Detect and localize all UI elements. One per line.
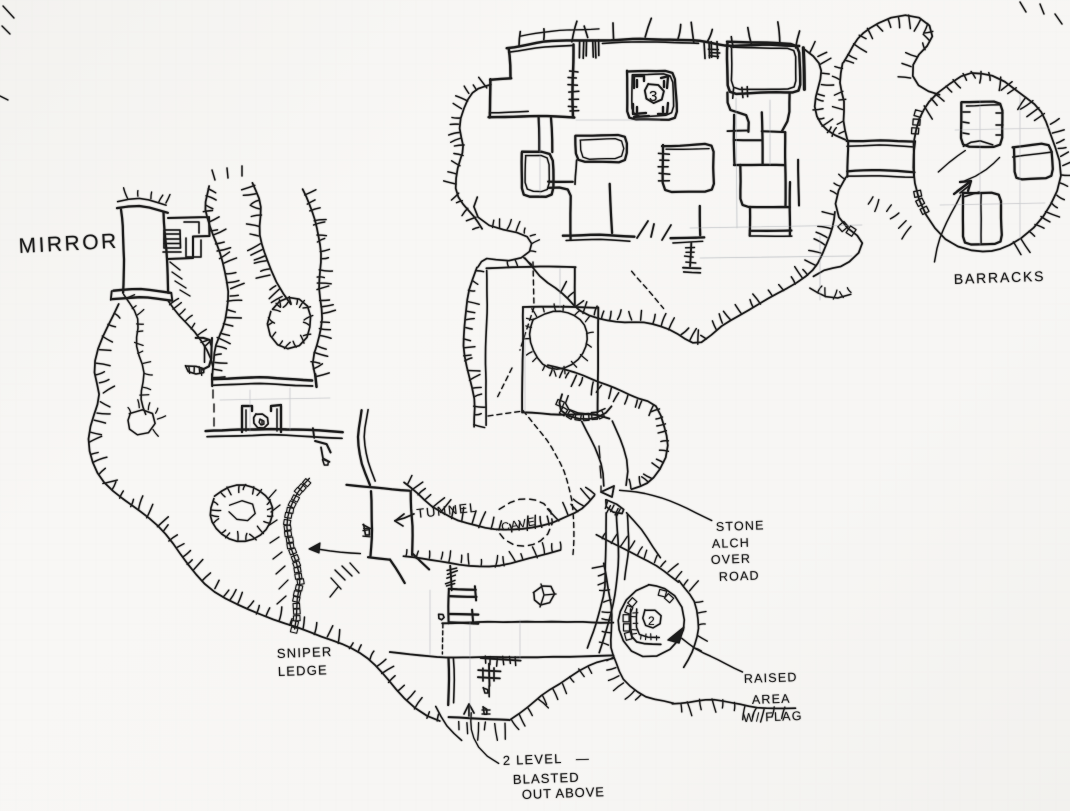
svg-text:BARRACKS: BARRACKS bbox=[954, 268, 1046, 287]
svg-text:AREA: AREA bbox=[752, 692, 791, 707]
svg-text:TUNNEL: TUNNEL bbox=[416, 500, 479, 521]
svg-text:3: 3 bbox=[649, 88, 657, 105]
svg-text:—: — bbox=[576, 751, 590, 766]
svg-text:W/ FLAG: W/ FLAG bbox=[743, 709, 803, 725]
svg-text:LEDGE: LEDGE bbox=[278, 662, 329, 679]
svg-text:RAISED: RAISED bbox=[744, 670, 798, 686]
svg-text:MIRROR: MIRROR bbox=[18, 230, 119, 258]
svg-text:ALCH: ALCH bbox=[712, 536, 751, 551]
svg-text:SNIPER: SNIPER bbox=[277, 644, 333, 661]
svg-text:2 LEVEL: 2 LEVEL bbox=[503, 751, 563, 768]
svg-text:OUT ABOVE: OUT ABOVE bbox=[522, 784, 605, 802]
svg-text:2: 2 bbox=[648, 614, 655, 628]
svg-text:ROAD: ROAD bbox=[719, 569, 760, 584]
svg-text:OVER: OVER bbox=[711, 552, 752, 567]
svg-text:STONE: STONE bbox=[716, 518, 765, 534]
